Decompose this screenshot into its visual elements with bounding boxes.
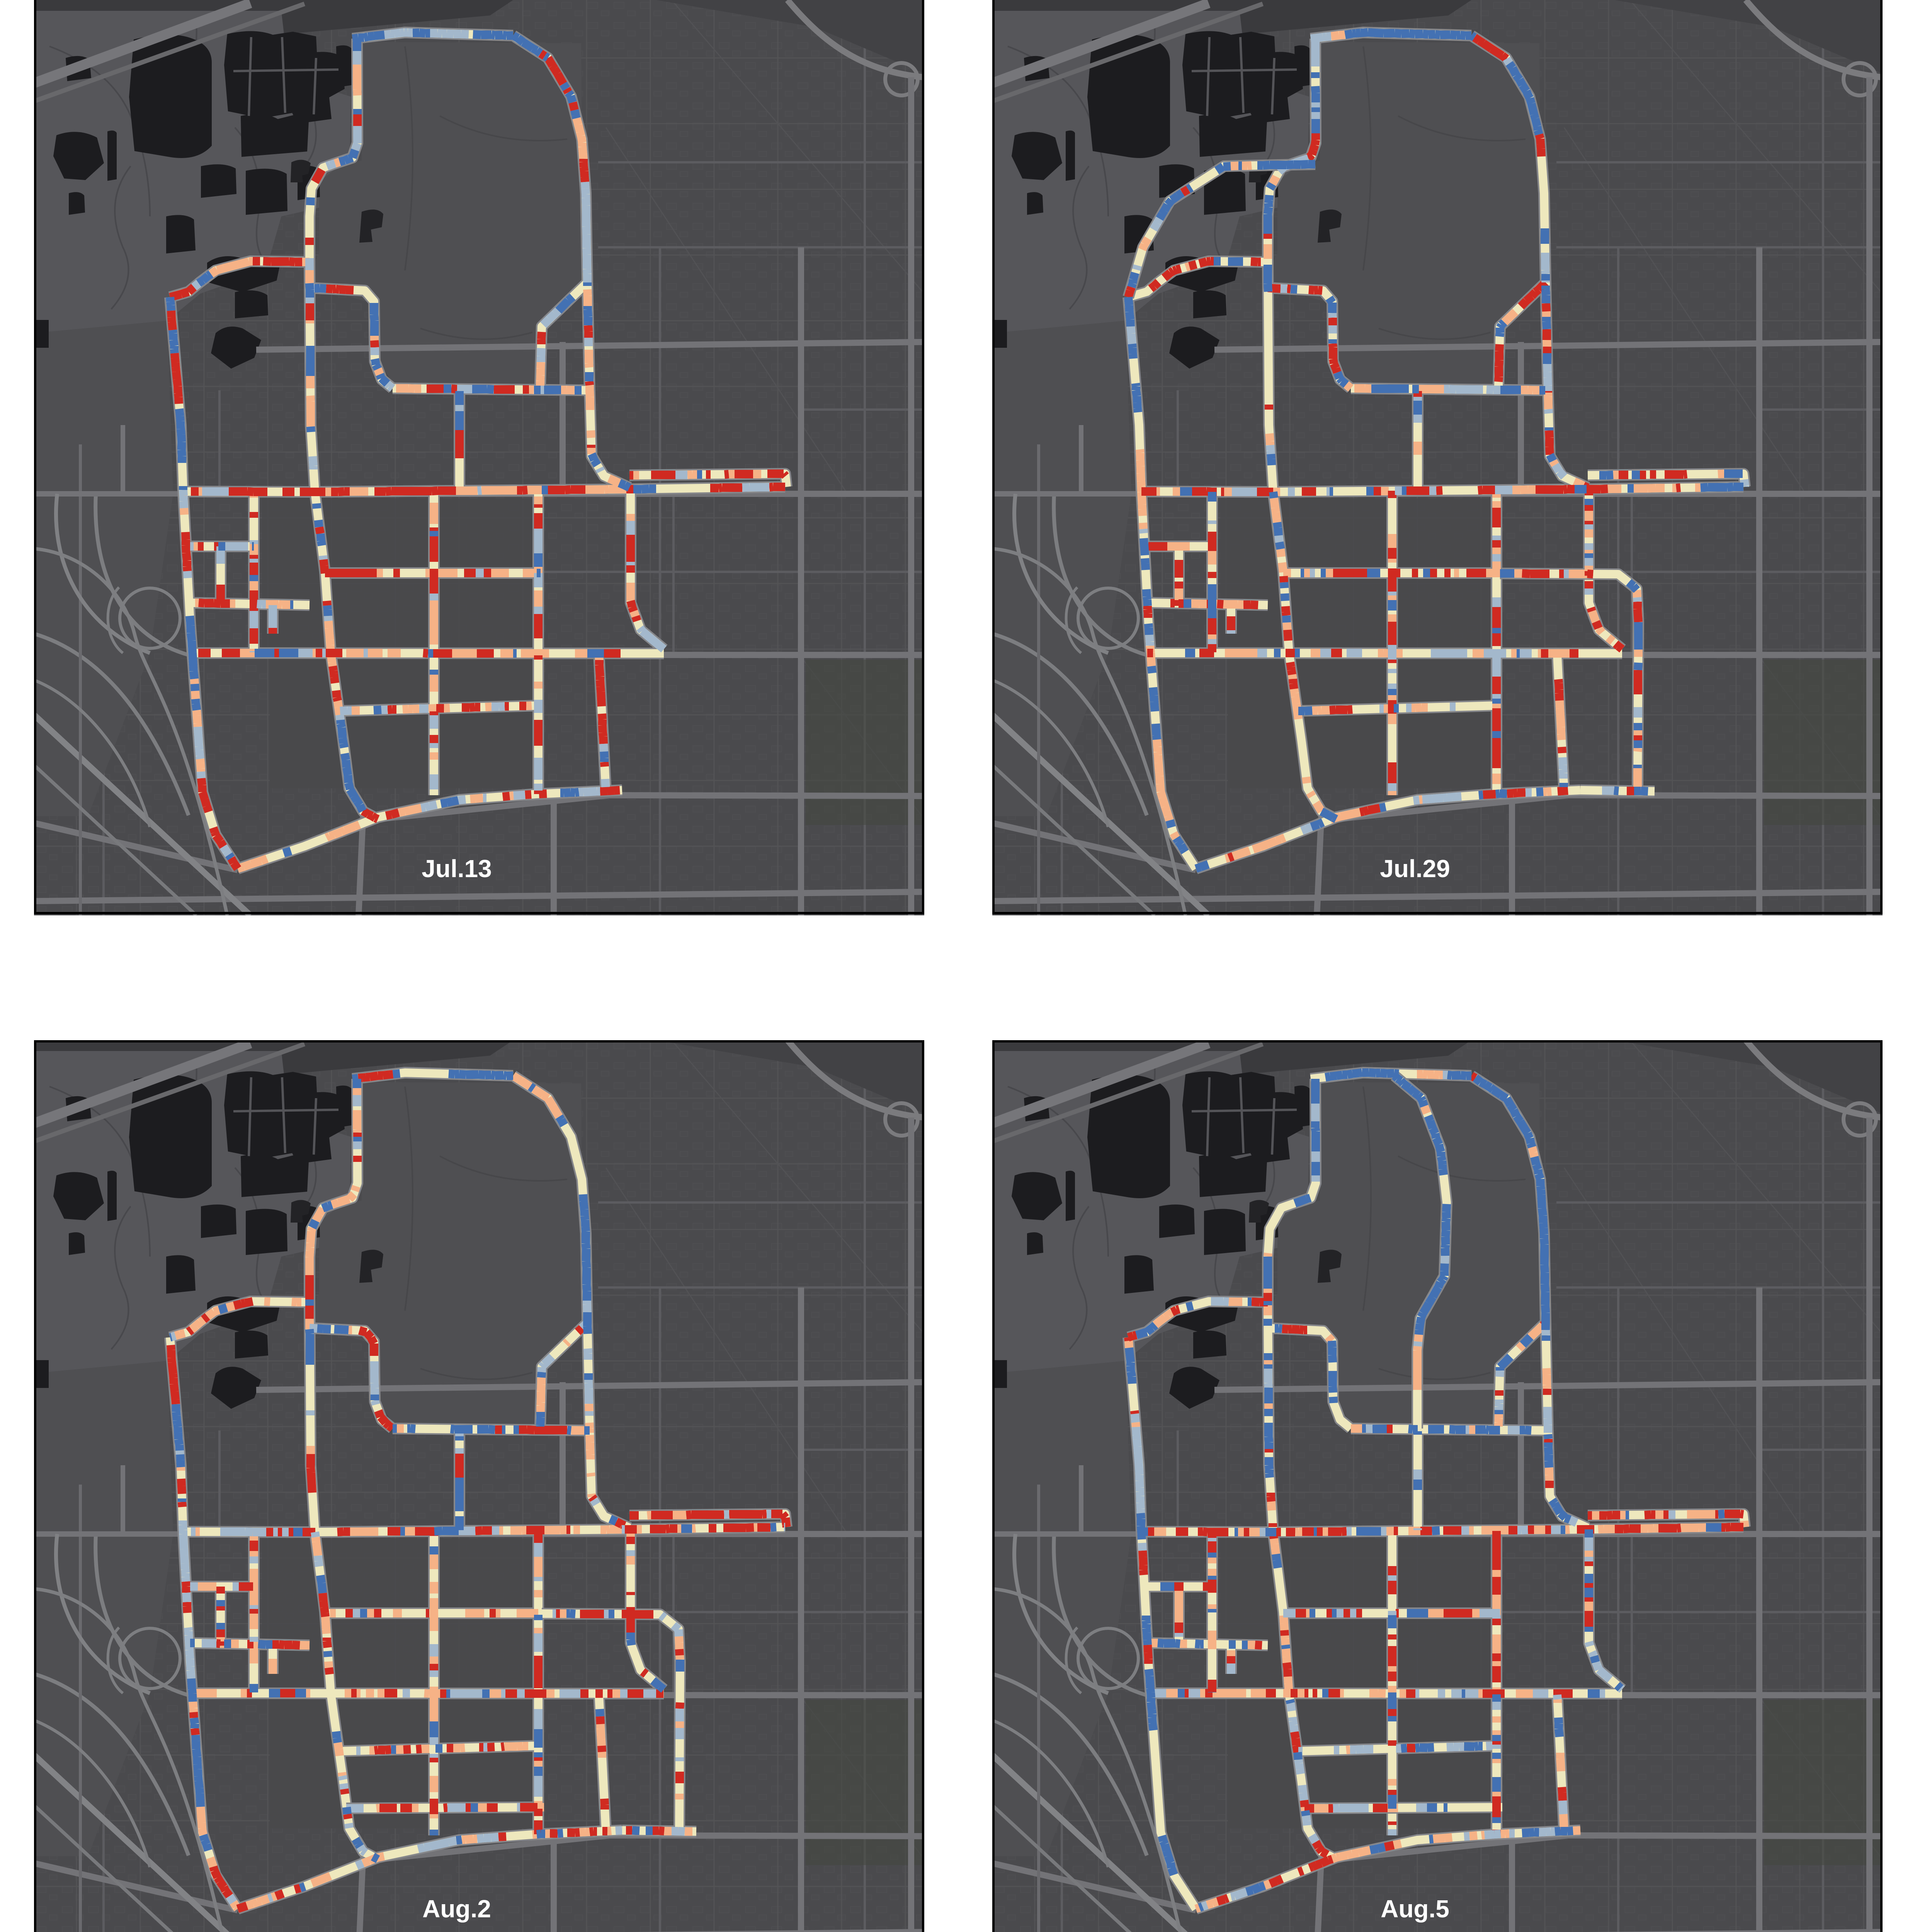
svg-text:Aug.2: Aug.2 xyxy=(422,1895,491,1923)
svg-text:Aug.5: Aug.5 xyxy=(1381,1895,1449,1923)
svg-text:Jul.29: Jul.29 xyxy=(1380,855,1450,883)
svg-text:Jul.13: Jul.13 xyxy=(422,855,492,883)
